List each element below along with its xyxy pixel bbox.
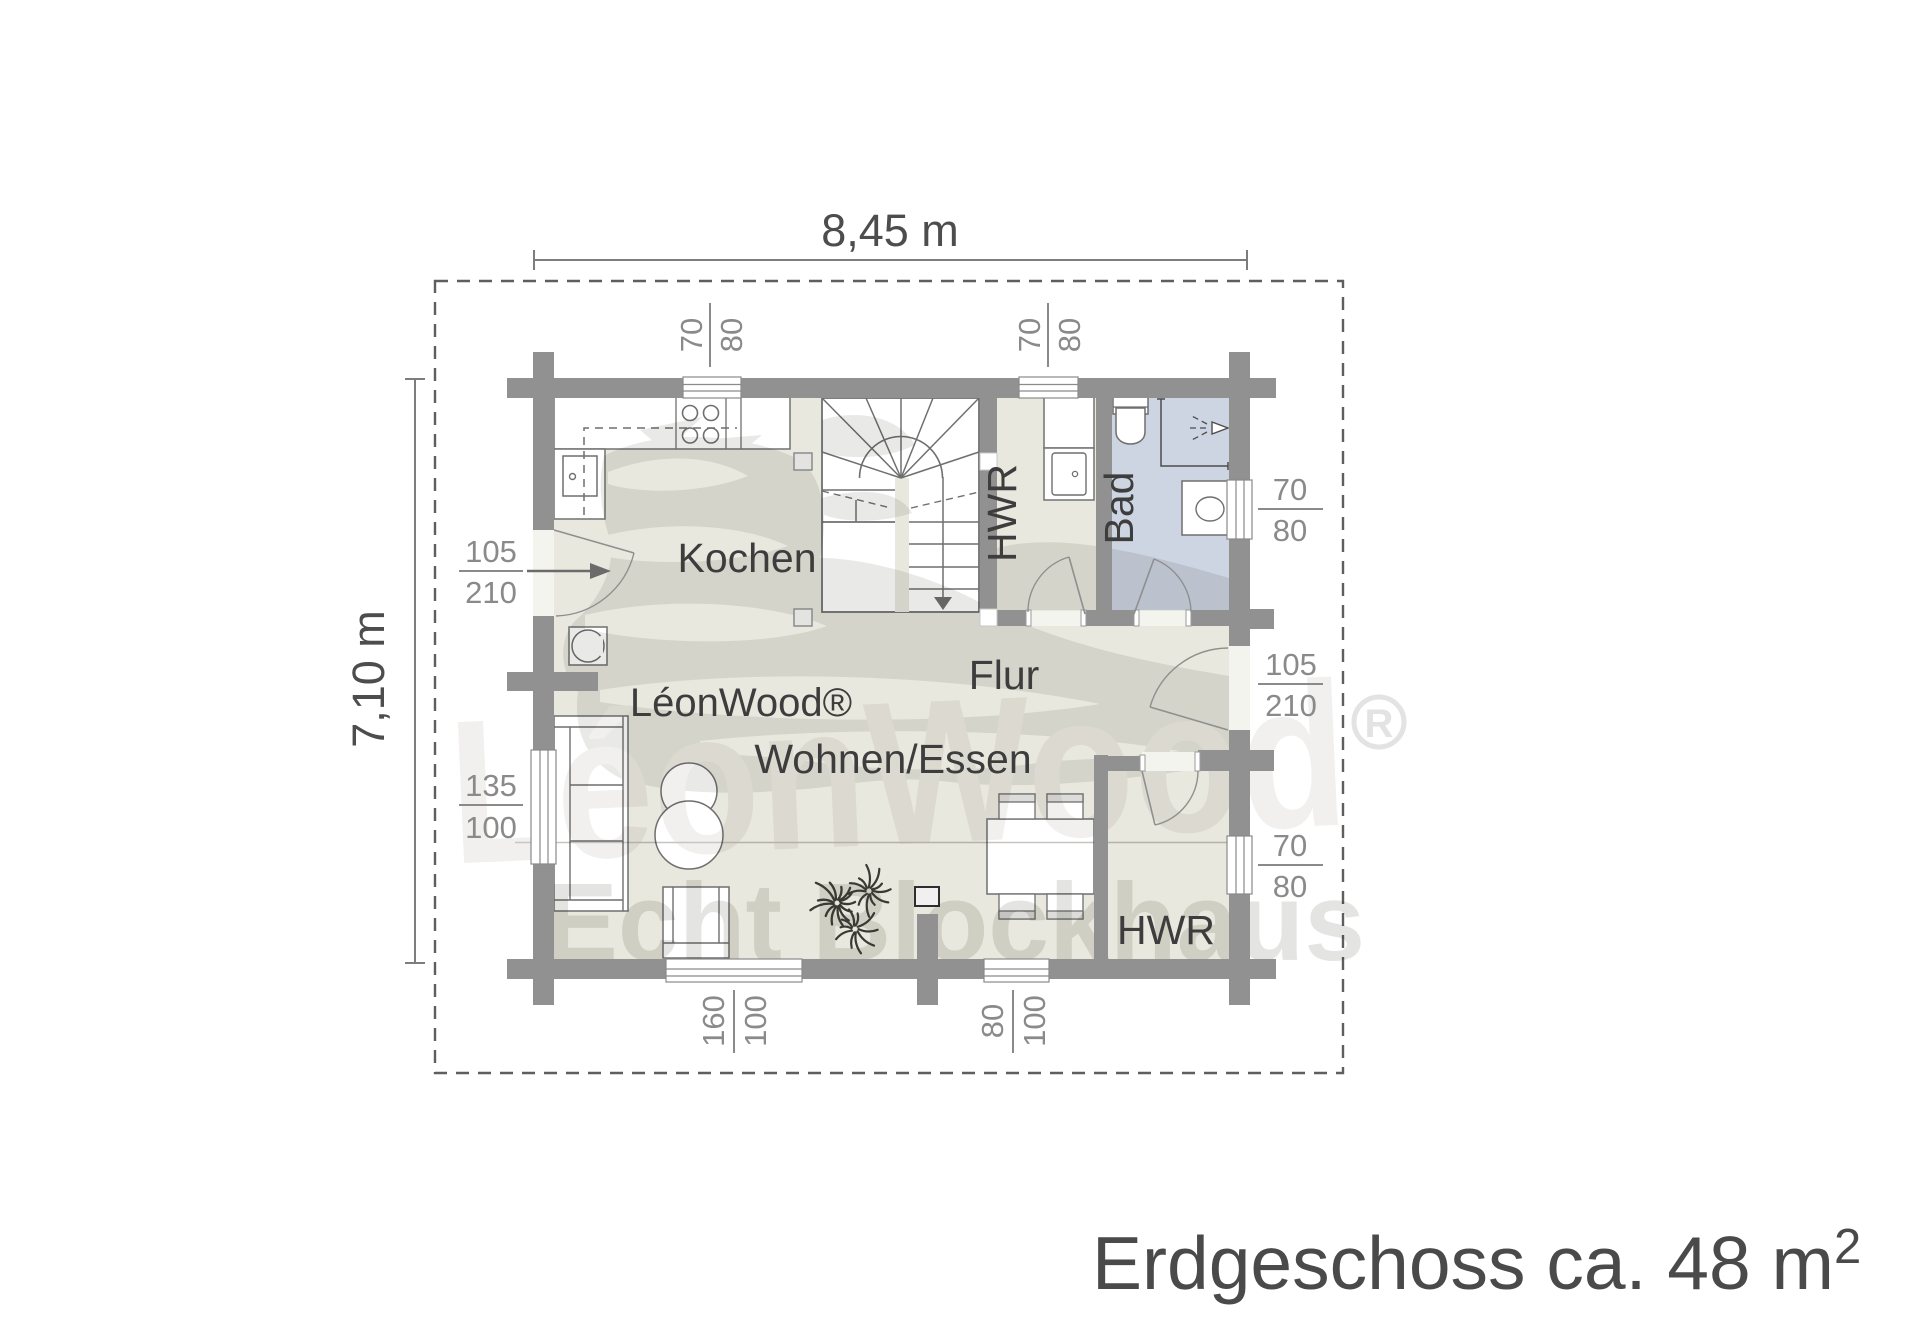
svg-text:R: R <box>1365 702 1394 746</box>
svg-text:Erdgeschoss ca. 48 m2: Erdgeschoss ca. 48 m2 <box>1092 1220 1861 1305</box>
svg-text:LéonWood®: LéonWood® <box>630 681 852 725</box>
svg-text:Wohnen/Essen: Wohnen/Essen <box>754 736 1031 782</box>
svg-text:80: 80 <box>975 1004 1010 1038</box>
svg-text:70: 70 <box>1012 318 1047 352</box>
svg-text:70: 70 <box>674 318 709 352</box>
svg-text:105: 105 <box>1265 647 1317 682</box>
svg-text:70: 70 <box>1273 472 1307 507</box>
svg-text:HWR: HWR <box>979 464 1025 562</box>
svg-text:100: 100 <box>738 995 773 1047</box>
svg-text:70: 70 <box>1273 828 1307 863</box>
svg-text:80: 80 <box>1273 513 1307 548</box>
svg-text:Kochen: Kochen <box>677 535 816 581</box>
svg-text:HWR: HWR <box>1117 907 1215 953</box>
svg-text:160: 160 <box>696 995 731 1047</box>
svg-text:100: 100 <box>1017 995 1052 1047</box>
svg-text:105: 105 <box>465 534 517 569</box>
svg-text:Flur: Flur <box>969 652 1040 698</box>
svg-text:80: 80 <box>1273 869 1307 904</box>
svg-text:Bad: Bad <box>1096 472 1142 545</box>
svg-text:135: 135 <box>465 768 517 803</box>
svg-text:7,10 m: 7,10 m <box>343 610 394 748</box>
svg-text:8,45 m: 8,45 m <box>821 205 959 256</box>
svg-text:210: 210 <box>1265 688 1317 723</box>
svg-text:80: 80 <box>714 318 749 352</box>
svg-text:100: 100 <box>465 810 517 845</box>
svg-text:210: 210 <box>465 575 517 610</box>
svg-text:80: 80 <box>1052 318 1087 352</box>
